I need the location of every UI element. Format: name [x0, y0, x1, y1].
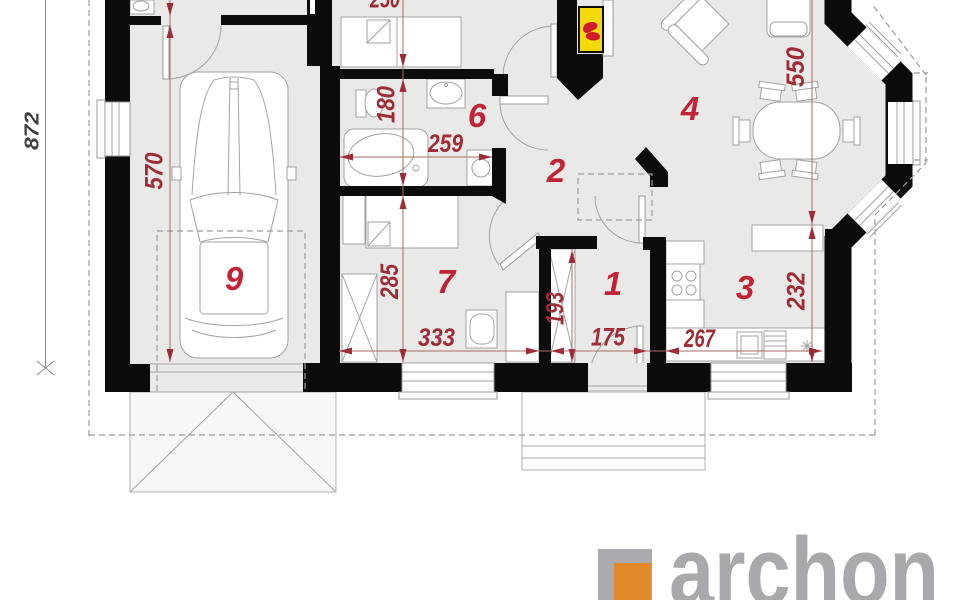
svg-text:259: 259	[427, 130, 463, 158]
svg-text:267: 267	[683, 325, 716, 353]
svg-text:232: 232	[783, 272, 811, 311]
svg-text:3: 3	[736, 269, 754, 306]
svg-text:285: 285	[376, 263, 404, 300]
svg-text:193: 193	[542, 292, 570, 325]
svg-text:9: 9	[225, 260, 244, 297]
svg-text:6: 6	[468, 97, 487, 134]
svg-text:570: 570	[141, 152, 169, 189]
svg-text:872: 872	[21, 112, 43, 150]
svg-text:175: 175	[591, 324, 626, 352]
svg-text:archon: archon	[669, 518, 939, 600]
svg-text:2: 2	[546, 152, 566, 189]
svg-text:7: 7	[437, 263, 457, 300]
svg-text:180: 180	[373, 86, 401, 123]
svg-text:250: 250	[369, 0, 400, 14]
svg-text:4: 4	[680, 90, 699, 127]
svg-text:1: 1	[604, 265, 622, 302]
svg-text:333: 333	[418, 324, 455, 352]
svg-text:550: 550	[782, 47, 810, 87]
